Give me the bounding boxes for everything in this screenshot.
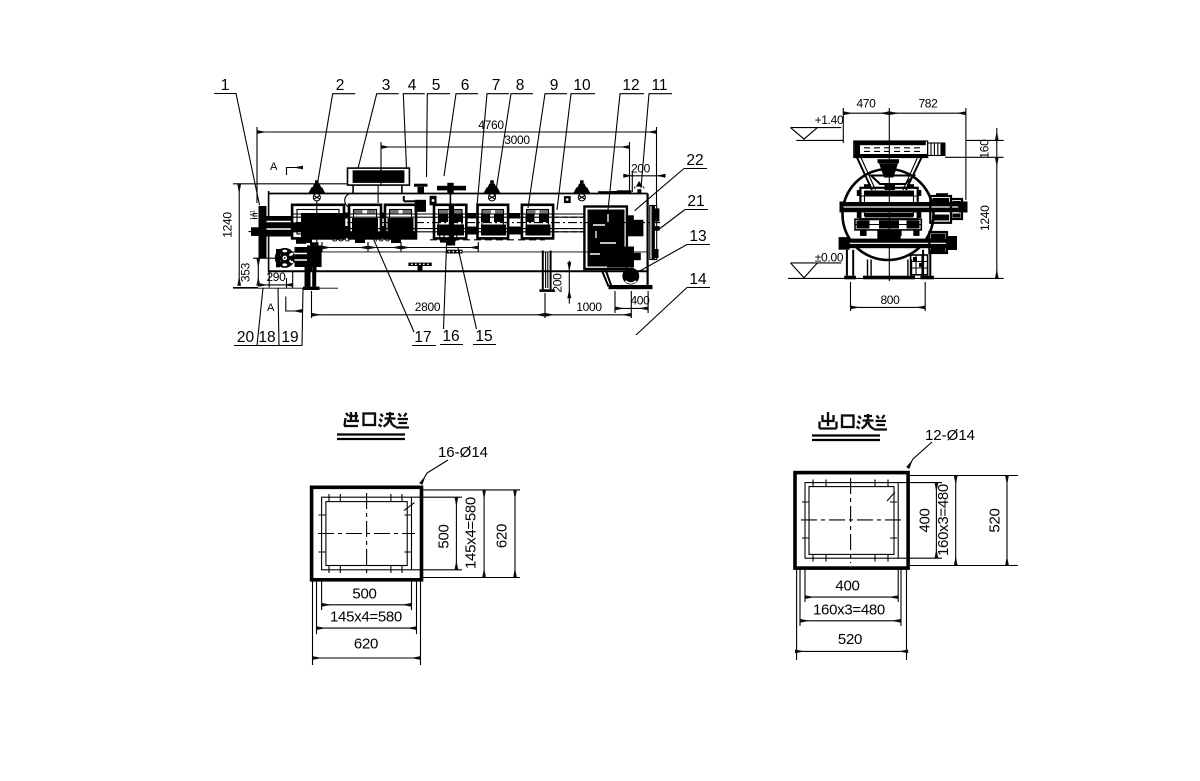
svg-text:200: 200	[551, 273, 565, 293]
svg-text:1: 1	[221, 77, 230, 94]
svg-text:1240: 1240	[221, 212, 235, 238]
svg-text:7: 7	[492, 77, 501, 94]
svg-text:520: 520	[987, 508, 1004, 532]
svg-text:4760: 4760	[478, 118, 504, 132]
svg-text:400: 400	[835, 578, 859, 595]
svg-text:920: 920	[438, 231, 458, 245]
svg-text:21: 21	[687, 193, 704, 210]
svg-text:620: 620	[494, 524, 511, 548]
svg-text:18: 18	[258, 329, 275, 346]
svg-text:17: 17	[414, 329, 431, 346]
svg-text:+1.40: +1.40	[815, 113, 844, 127]
svg-text:160x3=480: 160x3=480	[813, 602, 885, 619]
svg-text:800: 800	[880, 293, 900, 307]
svg-text:200: 200	[631, 162, 651, 176]
svg-text:500: 500	[352, 586, 376, 603]
svg-text:15: 15	[475, 328, 492, 345]
svg-text:353: 353	[239, 262, 253, 282]
svg-text:16-Ø14: 16-Ø14	[438, 444, 488, 461]
svg-text:13: 13	[689, 228, 706, 245]
svg-text:10: 10	[573, 77, 591, 94]
svg-text:160x3=480: 160x3=480	[935, 484, 952, 556]
svg-text:3000: 3000	[504, 133, 530, 147]
svg-text:14: 14	[689, 271, 707, 288]
svg-text:3: 3	[382, 77, 391, 94]
svg-text:A: A	[267, 302, 275, 314]
svg-text:470: 470	[856, 97, 876, 111]
svg-text:12: 12	[622, 77, 639, 94]
svg-text:2800: 2800	[415, 300, 441, 314]
svg-text:1240: 1240	[978, 205, 992, 231]
svg-text:A: A	[270, 161, 278, 173]
svg-text:1000: 1000	[576, 300, 602, 314]
svg-text:782: 782	[918, 97, 938, 111]
svg-text:2: 2	[336, 77, 345, 94]
svg-text:400: 400	[917, 508, 934, 532]
svg-text:4: 4	[408, 77, 417, 94]
svg-text:19: 19	[281, 329, 298, 346]
svg-text:145x4=580: 145x4=580	[330, 609, 402, 626]
svg-text:400: 400	[630, 294, 650, 308]
svg-text:22: 22	[686, 152, 703, 169]
svg-text:16: 16	[442, 328, 459, 345]
svg-text:500: 500	[436, 524, 453, 548]
svg-text:290: 290	[266, 270, 286, 284]
svg-text:145x4=580: 145x4=580	[463, 497, 480, 569]
svg-text:6: 6	[461, 77, 470, 94]
svg-text:620: 620	[354, 636, 378, 653]
svg-text:550: 550	[331, 231, 351, 245]
svg-text:5: 5	[432, 77, 441, 94]
svg-text:9: 9	[550, 77, 559, 94]
svg-text:12-Ø14: 12-Ø14	[925, 427, 975, 444]
svg-text:160: 160	[978, 139, 992, 159]
svg-text:11: 11	[651, 77, 667, 94]
svg-text:520: 520	[838, 631, 862, 648]
svg-text:20: 20	[237, 329, 255, 346]
svg-text:8: 8	[516, 77, 525, 94]
